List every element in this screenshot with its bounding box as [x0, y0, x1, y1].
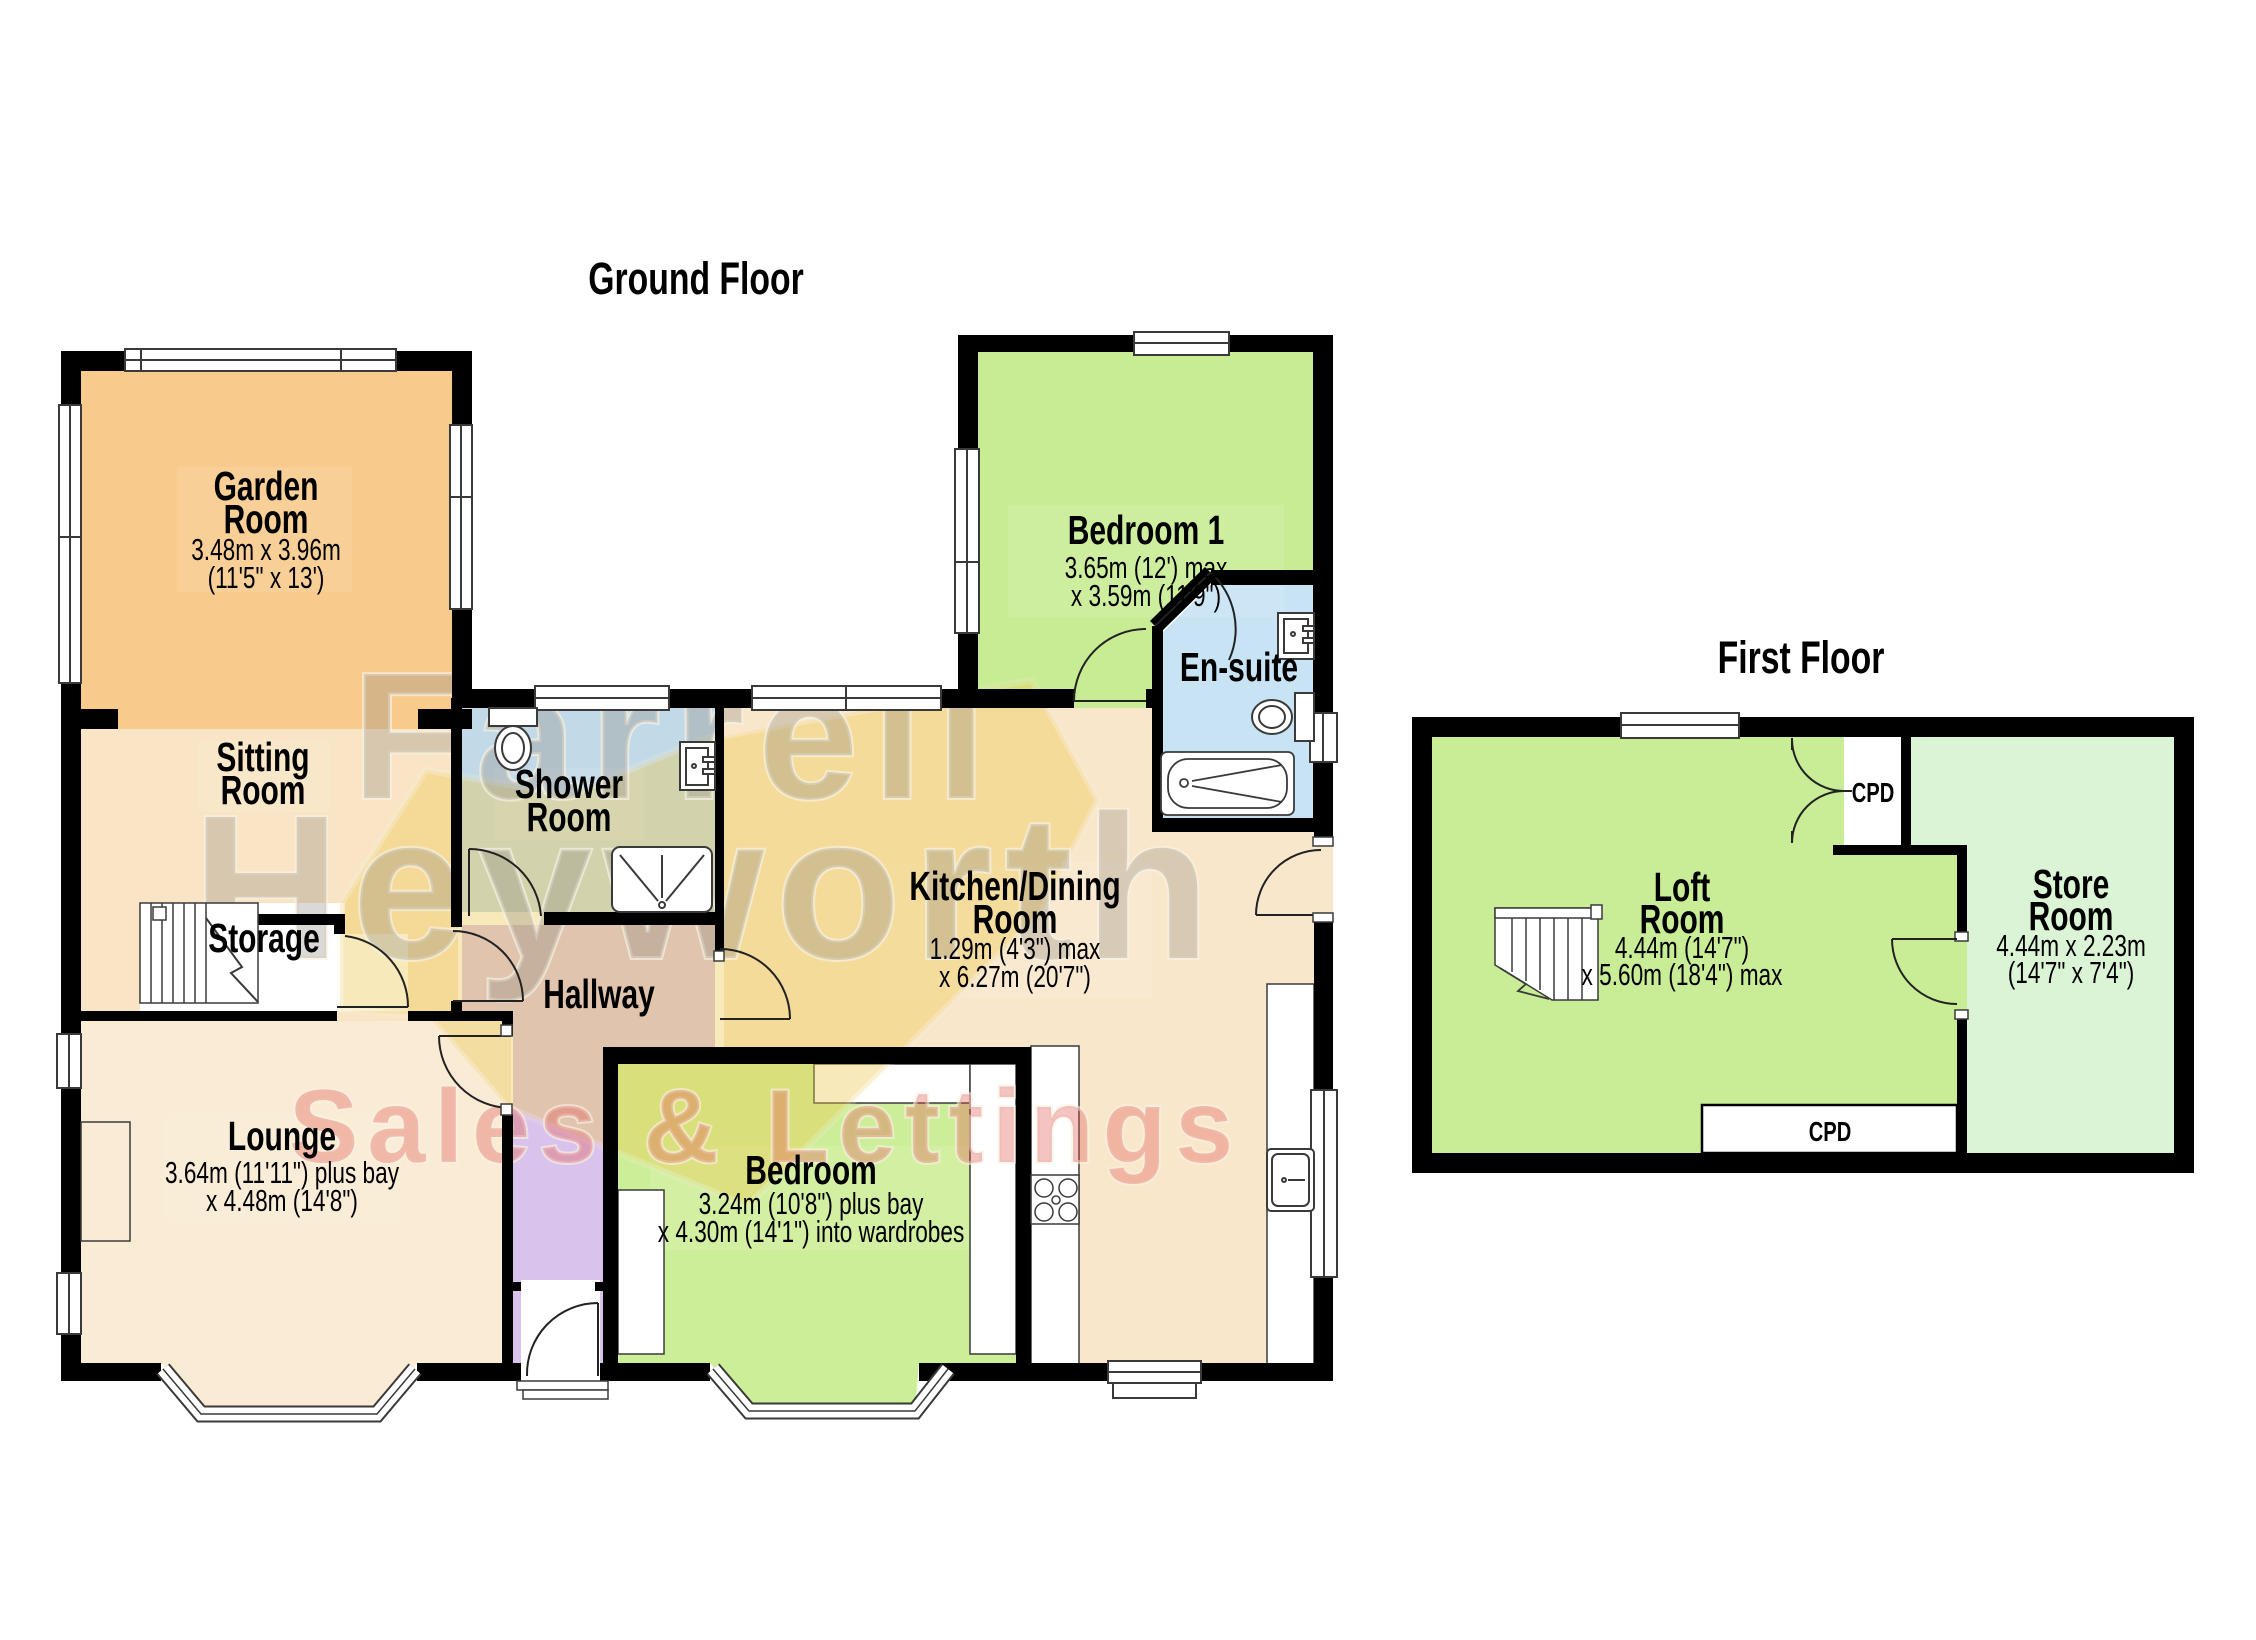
svg-text:Room: Room [221, 768, 306, 813]
svg-text:x 4.48m (14'8"): x 4.48m (14'8") [206, 1182, 358, 1217]
svg-text:En-suite: En-suite [1180, 645, 1298, 690]
svg-text:Storage: Storage [208, 916, 320, 961]
svg-text:First Floor: First Floor [1718, 633, 1885, 683]
svg-text:CPD: CPD [1852, 778, 1895, 809]
svg-text:CPD: CPD [1809, 1117, 1852, 1148]
svg-text:Ground Floor: Ground Floor [588, 254, 804, 304]
svg-text:x 4.30m (14'1") into wardrobes: x 4.30m (14'1") into wardrobes [658, 1213, 965, 1248]
svg-text:Lounge: Lounge [228, 1114, 336, 1159]
svg-text:(14'7" x 7'4"): (14'7" x 7'4") [2008, 954, 2135, 989]
svg-text:Hallway: Hallway [543, 972, 655, 1017]
svg-text:Room: Room [527, 795, 612, 840]
svg-text:x 5.60m (18'4") max: x 5.60m (18'4") max [1582, 956, 1783, 991]
svg-text:Bedroom 1: Bedroom 1 [1068, 508, 1224, 553]
svg-text:x 3.59m (11'9"): x 3.59m (11'9") [1071, 577, 1221, 612]
svg-text:x 6.27m (20'7"): x 6.27m (20'7") [939, 958, 1091, 993]
svg-text:(11'5" x 13'): (11'5" x 13') [208, 559, 325, 594]
